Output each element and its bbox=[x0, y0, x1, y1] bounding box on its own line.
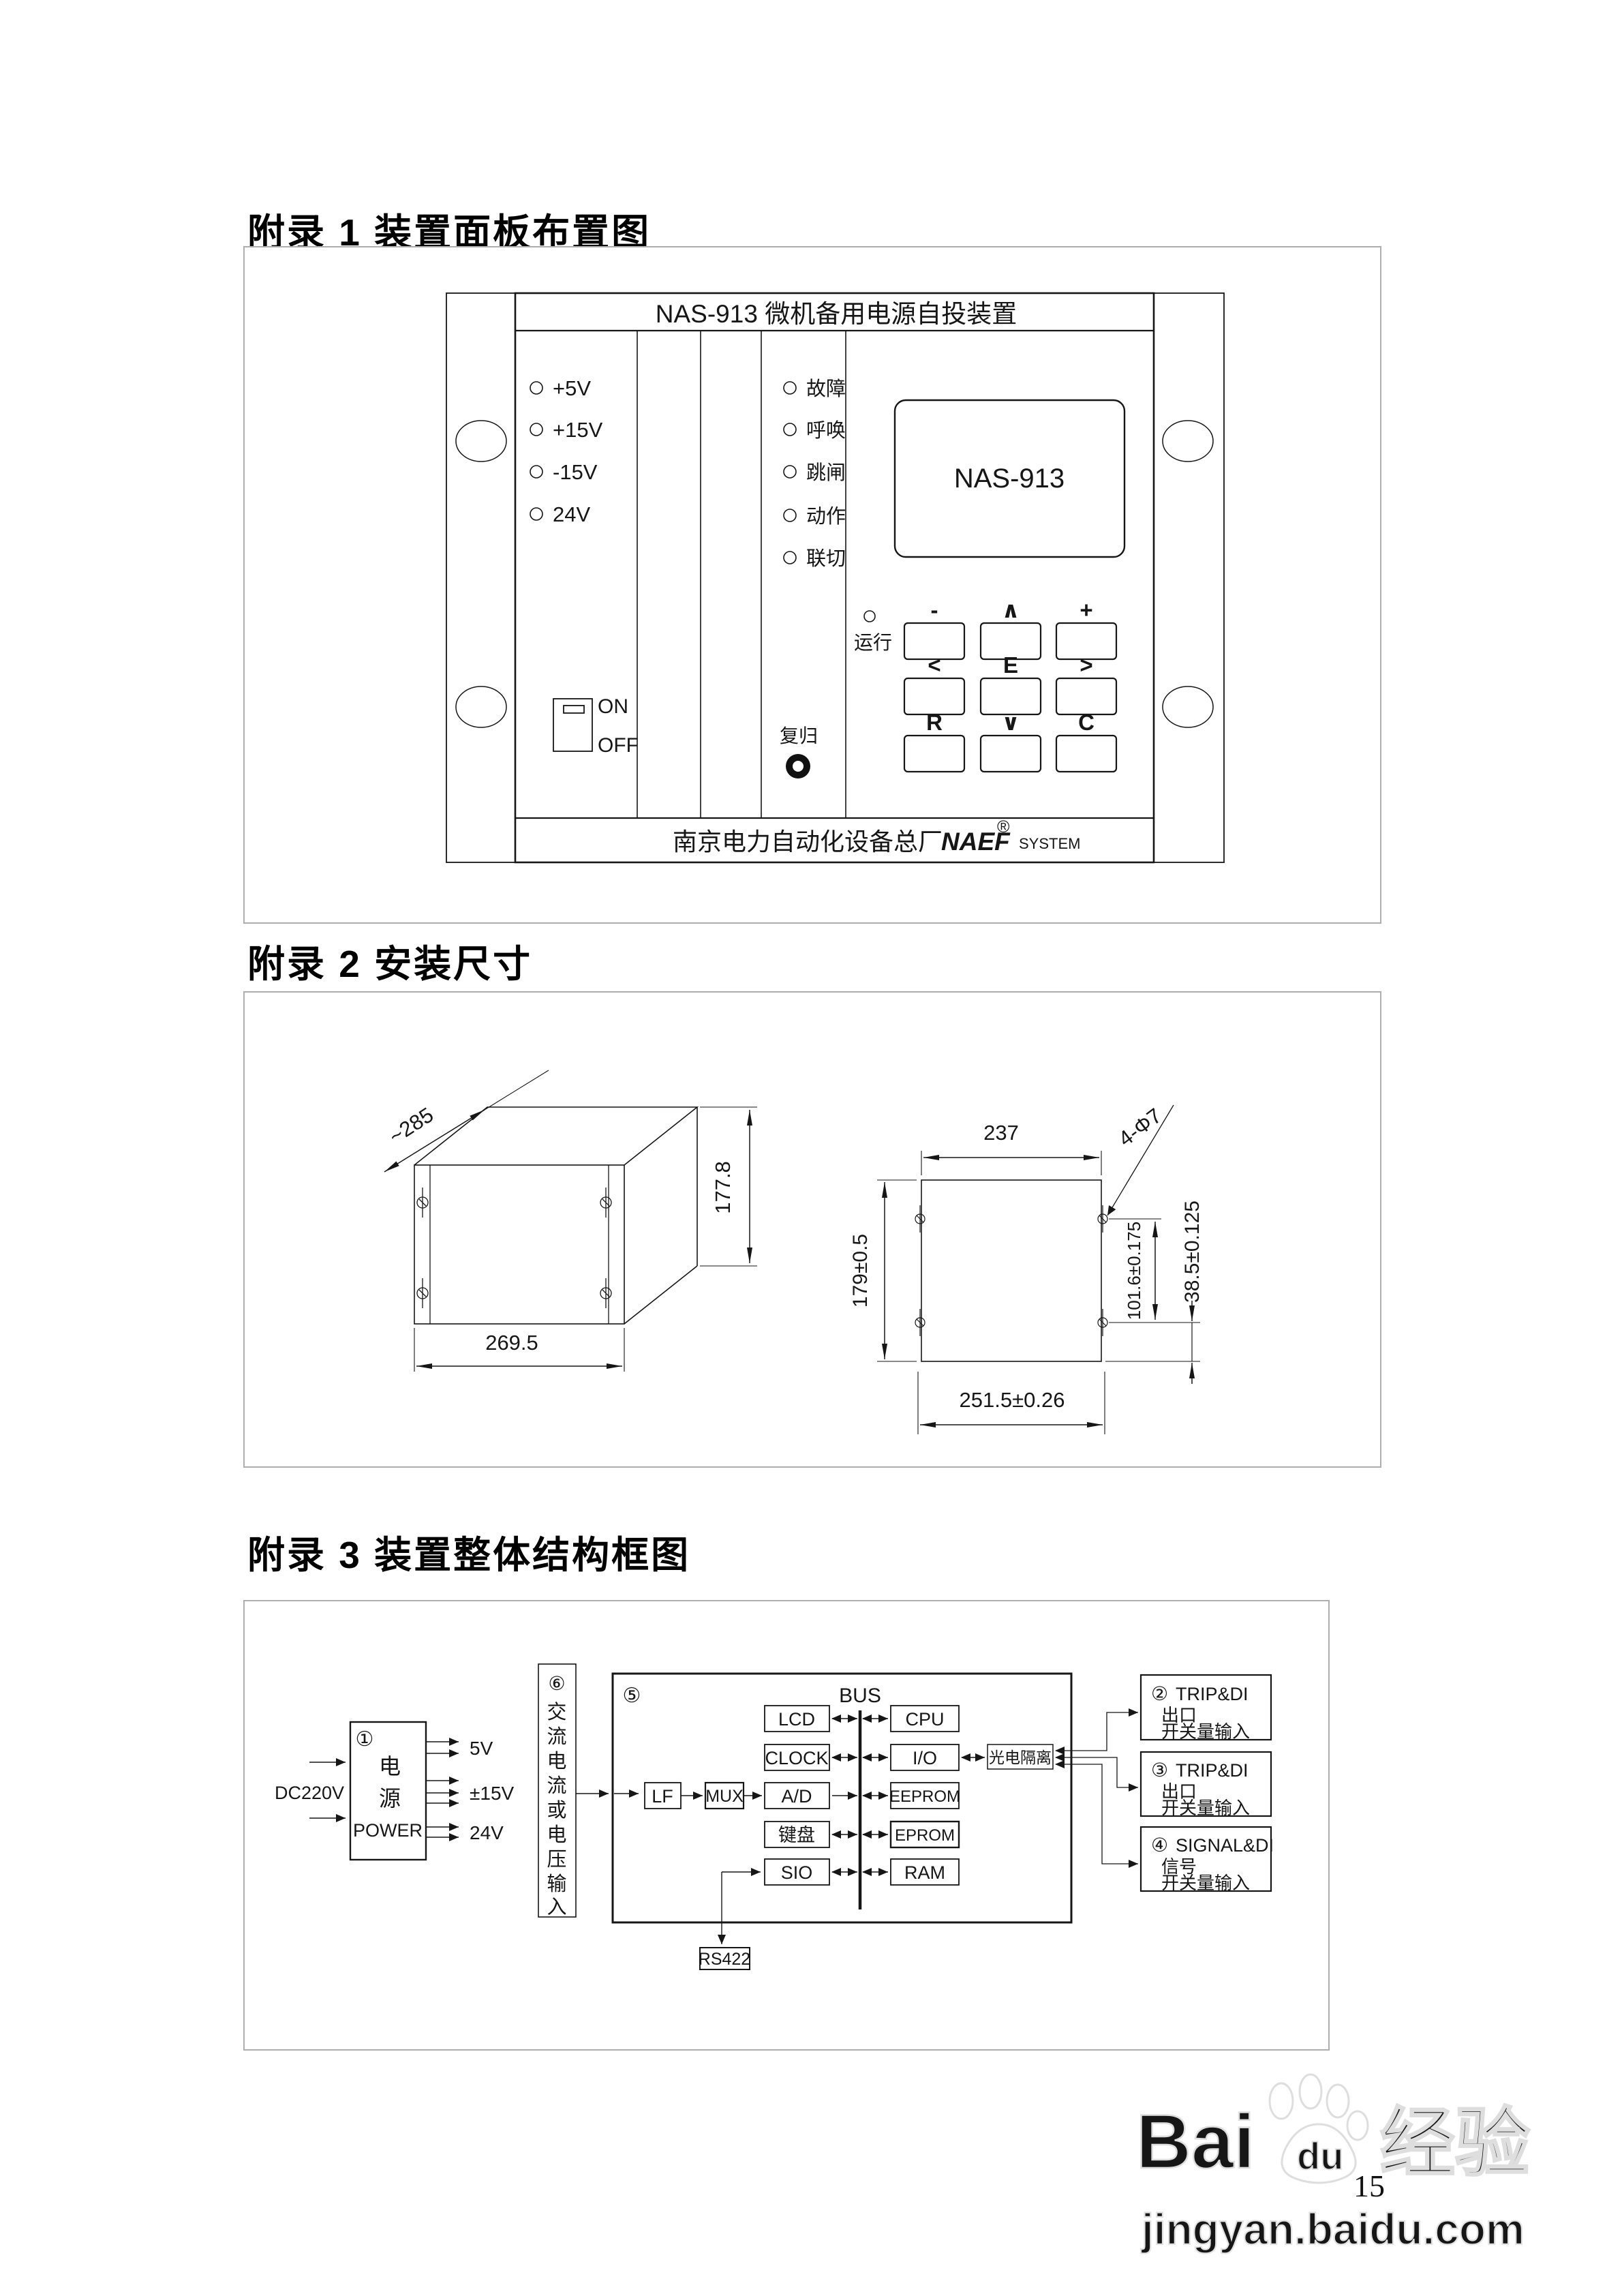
io-line3: 开关量输入 bbox=[1161, 1721, 1250, 1742]
dim-top-width-value: 237 bbox=[983, 1121, 1019, 1145]
brand-system: SYSTEM bbox=[1019, 835, 1080, 852]
led-label: 故障 bbox=[806, 378, 846, 400]
box-label: 键盘 bbox=[778, 1825, 815, 1845]
key-label: C bbox=[1078, 710, 1095, 735]
appendix2-title: 附录 2 安装尺寸 bbox=[247, 933, 532, 988]
led-dot bbox=[530, 508, 542, 520]
dim-width-value: 269.5 bbox=[485, 1331, 538, 1355]
power-switch: ON OFF bbox=[553, 695, 639, 757]
power-out3: 24V bbox=[470, 1822, 504, 1843]
led-dot bbox=[784, 466, 796, 478]
bus-label: BUS bbox=[839, 1685, 881, 1707]
io-line1: TRIP&DI bbox=[1176, 1760, 1249, 1781]
reset-knob-center bbox=[793, 761, 804, 772]
key-reset bbox=[904, 736, 964, 772]
led-dot bbox=[530, 382, 542, 394]
key-label: + bbox=[1080, 597, 1092, 622]
ac-char: 交 bbox=[547, 1701, 566, 1723]
figure2-dimensions: ~285 177.8 269.5 bbox=[243, 991, 1381, 1468]
box-label: CLOCK bbox=[765, 1748, 828, 1768]
wm-brand-du: du bbox=[1297, 2134, 1343, 2177]
box-label: RAM bbox=[904, 1862, 945, 1883]
ac-char: 入 bbox=[547, 1897, 566, 1918]
box-label: A/D bbox=[781, 1786, 812, 1807]
key-label: > bbox=[1080, 652, 1092, 678]
baidu-paw-icon bbox=[1270, 2074, 1368, 2183]
page-number: 15 bbox=[1353, 2168, 1385, 2204]
manual-page: 附录 1 装置面板布置图 NAS-913 微机备用电源自投装置 bbox=[0, 0, 1622, 2296]
ac-char: 或 bbox=[547, 1799, 566, 1822]
io-num: ③ bbox=[1151, 1759, 1168, 1781]
wm-brand-latin: Bai bbox=[1136, 2099, 1255, 2184]
led-label: 呼唤 bbox=[806, 419, 846, 442]
box-label: I/O bbox=[913, 1748, 937, 1768]
mux-label: MUX bbox=[705, 1787, 744, 1806]
led-label: -15V bbox=[553, 460, 598, 484]
ac-char: 电 bbox=[547, 1824, 566, 1846]
power-cn2: 源 bbox=[379, 1786, 401, 1811]
key-label: ∨ bbox=[1002, 710, 1020, 735]
io-num: ② bbox=[1151, 1683, 1168, 1704]
ac-char: 流 bbox=[547, 1774, 566, 1797]
led-label: 动作 bbox=[806, 505, 846, 528]
led-dot bbox=[784, 423, 796, 436]
box-label: EPROM bbox=[895, 1826, 955, 1845]
io-num: ④ bbox=[1151, 1834, 1168, 1856]
io-module-4: ④ SIGNAL&DI 信号 开关量输入 bbox=[1141, 1827, 1274, 1893]
box-label: SIO bbox=[781, 1862, 813, 1883]
status-led-column: 故障 呼唤 跳闸 动作 联切 bbox=[784, 378, 846, 570]
case-3d-edges bbox=[414, 1107, 697, 1324]
figure3-block-diagram: ① 电 源 POWER DC220V 5V ±15V 24V ⑥ bbox=[243, 1600, 1330, 2051]
panel-title: NAS-913 微机备用电源自投装置 bbox=[656, 300, 1017, 328]
rs422-label: RS422 bbox=[699, 1950, 750, 1969]
keypad: - ∧ + < E > R ∨ C bbox=[904, 597, 1116, 772]
run-led: 运行 bbox=[854, 611, 892, 653]
appendix3-title: 附录 3 装置整体结构框图 bbox=[247, 1524, 690, 1579]
switch-body bbox=[553, 699, 592, 751]
io-line1: SIGNAL&DI bbox=[1176, 1835, 1274, 1856]
ac-char: 流 bbox=[547, 1725, 566, 1748]
reset-button: 复归 bbox=[780, 725, 818, 779]
power-out1: 5V bbox=[470, 1738, 493, 1759]
power-module: ① 电 源 POWER DC220V 5V ±15V 24V bbox=[275, 1722, 515, 1860]
dim-bottom-width: 251.5±0.26 bbox=[918, 1372, 1105, 1434]
dim-left-height-value: 179±0.5 bbox=[849, 1234, 872, 1308]
power-input-label: DC220V bbox=[275, 1783, 344, 1803]
key-label: R bbox=[926, 710, 943, 735]
led-dot bbox=[864, 611, 875, 622]
dim-depth-value: ~285 bbox=[384, 1103, 438, 1149]
lf-label: LF bbox=[652, 1786, 673, 1807]
dim-edge-offset: 38.5±0.125 bbox=[1105, 1200, 1204, 1384]
led-label: +5V bbox=[553, 376, 591, 400]
box-label: CPU bbox=[905, 1709, 944, 1729]
power-en: POWER bbox=[353, 1820, 423, 1841]
led-dot bbox=[530, 466, 542, 478]
iso-label: 光电隔离 bbox=[989, 1749, 1052, 1766]
switch-lever bbox=[564, 706, 584, 713]
right-mounting-ear bbox=[1154, 293, 1224, 862]
io-module-2: ② TRIP&DI 出口 开关量输入 bbox=[1141, 1675, 1271, 1742]
dim-height: 177.8 bbox=[700, 1107, 757, 1266]
cutout-rect bbox=[921, 1180, 1101, 1361]
board-num: ⑤ bbox=[623, 1685, 641, 1707]
dim-holes-callout: 4-Φ7 bbox=[1107, 1104, 1174, 1215]
box-label: EEPROM bbox=[889, 1787, 960, 1806]
front-flanges bbox=[430, 1165, 609, 1324]
panel-footer: 南京电力自动化设备总厂 NAEF ® SYSTEM bbox=[673, 817, 1080, 856]
ac-char: 输 bbox=[547, 1873, 566, 1895]
holes-callout-value: 4-Φ7 bbox=[1114, 1104, 1166, 1151]
ear-hole bbox=[456, 686, 506, 727]
key-label: E bbox=[1003, 652, 1018, 678]
switch-on-label: ON bbox=[598, 695, 628, 718]
block-diagram: ① 电 源 POWER DC220V 5V ±15V 24V ⑥ bbox=[245, 1601, 1328, 2049]
led-dot bbox=[784, 552, 796, 564]
case-front bbox=[414, 1165, 624, 1324]
ac-char: 压 bbox=[547, 1849, 566, 1871]
dim-height-value: 177.8 bbox=[711, 1161, 735, 1214]
ear-hole bbox=[1163, 686, 1213, 727]
cpu-board: ⑤ BUS LCD CLOCK A/D 键盘 SIO bbox=[613, 1674, 1071, 1944]
key-down bbox=[981, 736, 1041, 772]
run-led-label: 运行 bbox=[854, 632, 892, 653]
key-label: - bbox=[931, 597, 938, 622]
case-screws bbox=[417, 1188, 611, 1308]
ear-hole bbox=[456, 421, 506, 462]
dim-hole-span-value: 101.6±0.175 bbox=[1124, 1222, 1144, 1320]
io-line3: 开关量输入 bbox=[1161, 1873, 1250, 1893]
dim-width: 269.5 bbox=[414, 1328, 624, 1372]
left-mounting-ear bbox=[446, 293, 515, 862]
baidu-watermark: Bai du 经验 jingyan.baidu.com bbox=[1135, 2066, 1571, 2291]
power-cn1: 电 bbox=[379, 1754, 401, 1779]
cutout-holes bbox=[915, 1205, 1107, 1336]
switch-off-label: OFF bbox=[598, 734, 639, 757]
baidu-watermark-svg: Bai du 经验 jingyan.baidu.com bbox=[1135, 2066, 1571, 2291]
lcd-text: NAS-913 bbox=[954, 464, 1065, 494]
ac-char: 电 bbox=[547, 1750, 566, 1772]
reset-label: 复归 bbox=[780, 725, 818, 746]
case-isometric bbox=[414, 1107, 697, 1324]
dim-bottom-width-value: 251.5±0.26 bbox=[960, 1388, 1065, 1412]
io-module-3: ③ TRIP&DI 出口 开关量输入 bbox=[1141, 1752, 1271, 1818]
panel-drawing: NAS-913 微机备用电源自投装置 +5V +15V -15V 24V 故障 bbox=[245, 247, 1380, 922]
power-num: ① bbox=[356, 1728, 374, 1751]
led-dot bbox=[784, 382, 796, 394]
manufacturer-name: 南京电力自动化设备总厂 bbox=[673, 828, 943, 856]
wm-brand-cn: 经验 bbox=[1380, 2102, 1530, 2186]
dim-top-width: 237 bbox=[921, 1121, 1101, 1175]
ear-hole bbox=[1163, 421, 1213, 462]
led-label: 联切 bbox=[806, 548, 846, 570]
io-line1: TRIP&DI bbox=[1176, 1684, 1249, 1704]
iso-fanout bbox=[1056, 1712, 1138, 1864]
box-label: LCD bbox=[778, 1709, 815, 1729]
registered-mark: ® bbox=[997, 817, 1010, 836]
wm-url: jingyan.baidu.com bbox=[1141, 2205, 1525, 2254]
led-dot bbox=[530, 423, 542, 436]
dimension-drawing: ~285 177.8 269.5 bbox=[245, 993, 1380, 1466]
figure1-panel-layout: NAS-913 微机备用电源自投装置 +5V +15V -15V 24V 故障 bbox=[243, 246, 1381, 924]
io-line3: 开关量输入 bbox=[1161, 1798, 1250, 1818]
cpu-board-box bbox=[613, 1674, 1071, 1922]
led-label: 24V bbox=[553, 502, 590, 526]
led-dot bbox=[784, 509, 796, 522]
dim-hole-span: 101.6±0.175 bbox=[1109, 1219, 1161, 1323]
key-cancel bbox=[1056, 736, 1116, 772]
led-label: +15V bbox=[553, 418, 603, 442]
key-label: ∧ bbox=[1002, 597, 1020, 622]
dim-left-height: 179±0.5 bbox=[849, 1180, 917, 1361]
ac-num: ⑥ bbox=[548, 1673, 565, 1694]
power-out2: ±15V bbox=[470, 1783, 515, 1804]
power-led-column: +5V +15V -15V 24V bbox=[530, 376, 603, 526]
key-label: < bbox=[928, 652, 940, 678]
led-label: 跳闸 bbox=[806, 462, 846, 484]
dim-depth: ~285 bbox=[384, 1070, 549, 1172]
dim-edge-offset-value: 38.5±0.125 bbox=[1181, 1200, 1204, 1303]
